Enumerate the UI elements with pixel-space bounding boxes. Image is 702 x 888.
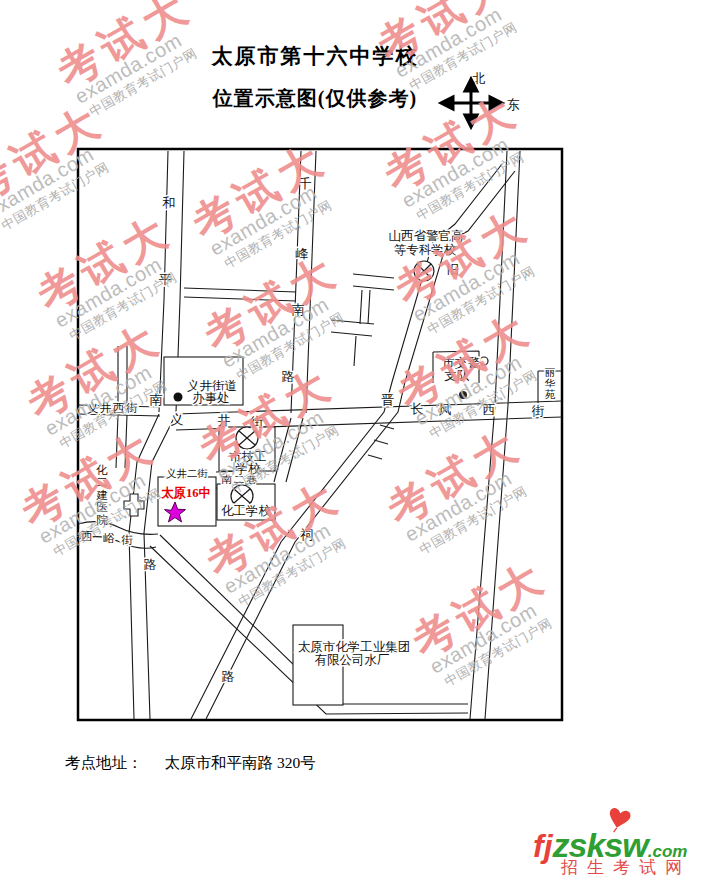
changfeng-street-char: 街 [532,403,545,418]
heping-road-char: 平 [159,272,172,287]
changfeng-street-char: 西 [483,402,496,417]
old-road-mark-label: 旧 [447,263,460,277]
police-college-label: 等专科学校 [394,243,457,257]
title-line1: 太原市第十六中学校 [0,42,630,70]
traffic-police-circle-icon [480,357,488,365]
nan-er-lane-label: 南二巷 [221,474,259,485]
jinci-road-char: 祠 [300,527,314,542]
site-logo[interactable]: fjzsksw.com 招生考试网 [531,810,702,885]
water-plant-label: 有限公司水厂 [315,653,390,667]
xiyu-street-char: 西 [81,530,93,542]
chem-school-label: 化工学校 [221,504,272,518]
qianfeng-road-char: 峰 [296,246,309,261]
yijing-street-char: 义 [171,412,184,427]
police-college-symbol-icon [414,261,434,281]
traffic-police-label: 市交警 [442,356,480,370]
logo-subtitle: 招生考试网 [561,856,691,879]
exam-address-label: 考点地址： [65,754,143,771]
xiyu-street-char: 峪 [103,532,115,544]
page: { "title": { "line1": "太原市第十六中学校", "line… [0,0,702,888]
lihua-yuan-char: 丽 [545,367,556,378]
logo-prefix: fj [533,828,553,864]
jinci-road-char: 晋 [382,392,395,407]
qianfeng-road-char: 路 [282,369,295,384]
exam-address: 考点地址：太原市和平南路 320号 [65,753,316,774]
qianfeng-road-char: 千 [299,176,312,191]
traffic-police-dot-icon [459,391,467,399]
qianfeng-road-char: 南 [292,302,305,317]
police-college-label: 山西省警官高 [389,229,464,243]
hospital-char: 化 [95,464,108,476]
traffic-police-label: 支队 [445,369,471,383]
hospital-char: 院 [96,514,108,526]
title-line2: 位置示意图(仅供参考) [0,85,630,112]
lihua-yuan-char: 华 [545,378,556,389]
hospital-char: 建 [96,489,108,501]
street-office-dot-icon [174,393,183,402]
heping-road-char: 南 [150,392,163,407]
water-plant-label: 太原市化学工业集团 [298,640,411,654]
lihua-yuan-char: 苑 [545,389,556,400]
changfeng-street-char: 长 [411,401,424,416]
yijing-street-char: 街 [251,414,264,429]
heping-road-char: 和 [162,195,176,210]
heping-road-char: 路 [144,557,157,572]
exam-school-label: 太原16中 [160,486,211,500]
xiyu-street-char: 街 [121,534,133,546]
tech-school-label: 学校 [236,462,262,476]
street-office-label: 办事处 [192,391,230,405]
hospital-char: 医 [96,501,108,513]
yijing-west-street-label: 义井西街 [87,402,139,414]
page-title: 太原市第十六中学校 位置示意图(仅供参考) [0,42,630,112]
hospital-char: 二 [96,476,108,488]
exam-address-value: 太原市和平南路 320号 [165,754,316,771]
yijing-street-char: 井 [218,413,231,428]
exam-school-block [158,477,216,526]
tech-school-symbol-icon [236,427,258,449]
jinci-road-char: 路 [222,669,235,684]
yijing-2nd-street-label: 义井二街 [166,468,208,479]
changfeng-street-char: 风 [439,402,452,417]
